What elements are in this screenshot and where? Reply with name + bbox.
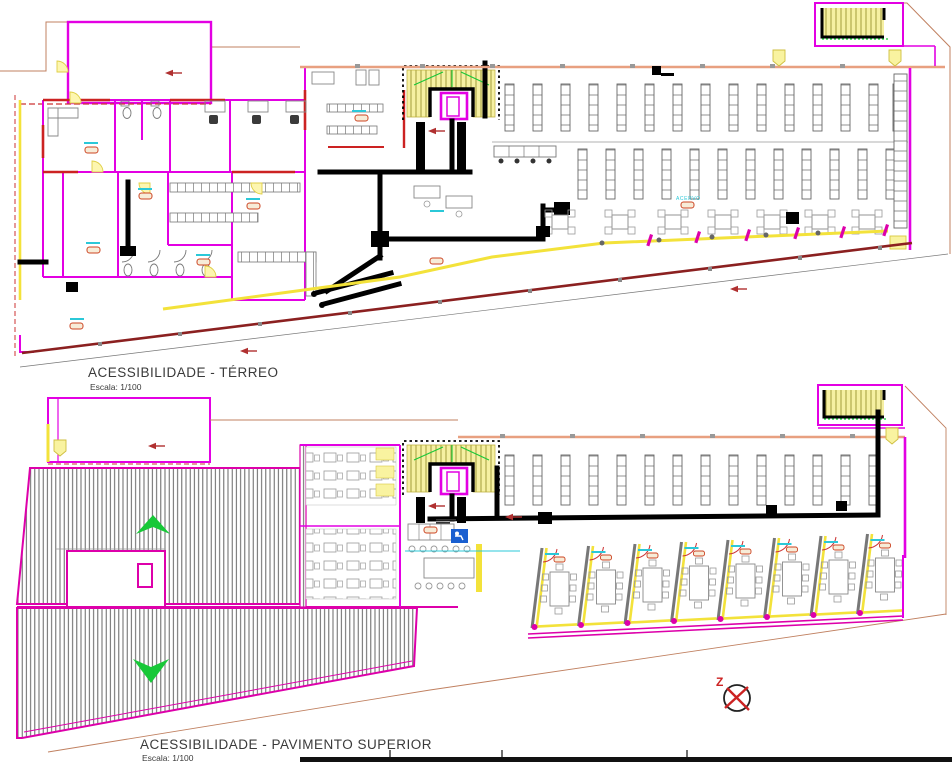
site-line-diagonal — [20, 254, 948, 367]
drawing-sheet: ACERVO — [0, 0, 952, 766]
plan-scale-terreo: Escala: 1/100 — [90, 382, 142, 392]
wheelchair-symbol — [536, 226, 550, 237]
shelf-counter — [170, 213, 258, 222]
left-block-rooms — [43, 66, 316, 300]
office-desks — [48, 101, 306, 136]
stairs-top-right-terreo — [773, 3, 935, 66]
room-top-left — [20, 22, 211, 104]
floor-plan-canvas: ACERVO — [0, 0, 952, 766]
north-label: Z — [716, 675, 723, 689]
study-counter — [494, 146, 556, 164]
snack-area — [405, 519, 520, 592]
plan-title-superior: ACESSIBILIDADE - PAVIMENTO SUPERIOR — [140, 737, 432, 752]
site-edge-left — [15, 95, 34, 358]
pillar — [457, 122, 466, 170]
shelf-row-top — [505, 84, 902, 131]
north-indicator: Z — [716, 675, 750, 711]
roof-hatch — [17, 468, 458, 738]
pillar — [416, 122, 425, 170]
wheelchair-symbol — [786, 212, 799, 224]
study-carrels — [306, 447, 396, 599]
shelf-row-superior — [505, 455, 878, 505]
route-junction — [371, 231, 389, 247]
classrooms — [528, 534, 903, 638]
room-label-acervo: ACERVO — [676, 196, 701, 202]
stairs-top-right-superior — [818, 385, 905, 444]
plan-title-terreo: ACESSIBILIDADE - TÉRREO — [88, 365, 279, 380]
reading-tables — [545, 210, 882, 234]
yellow-path — [163, 231, 888, 309]
room-top-left-superior — [48, 398, 210, 464]
shelf-row-bottom — [578, 149, 895, 199]
plan-scale-superior: Escala: 1/100 — [142, 753, 194, 763]
wall-shelves — [894, 74, 907, 228]
shelf-counter — [170, 183, 300, 192]
upper-floor-plan: ACESSIBILIDADE - PAVIMENTO SUPERIOR Esca… — [17, 385, 946, 763]
ground-floor-plan: ACERVO — [0, 3, 950, 392]
title-terreo: ACESSIBILIDADE - TÉRREO Escala: 1/100 — [88, 365, 279, 392]
